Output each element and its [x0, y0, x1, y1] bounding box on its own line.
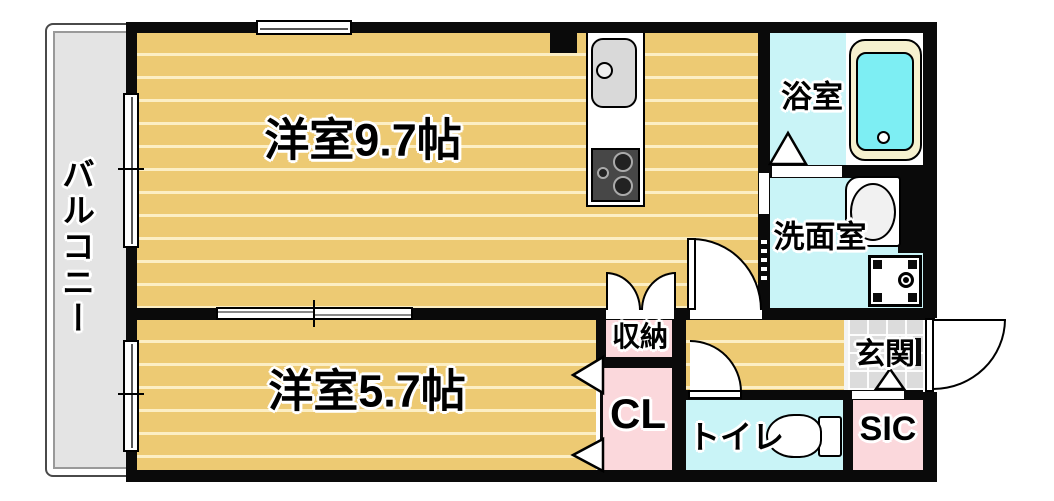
room-door-opening — [690, 309, 762, 319]
floor-plan: バルコニー 洋室9.7帖 洋室5.7帖 浴室 洗面室 収納 CL トイレ 玄関 … — [0, 0, 1054, 501]
bathroom-door-opening — [772, 166, 842, 177]
balcony-window-upper — [123, 93, 139, 248]
stove-burner-large-2 — [613, 176, 633, 196]
closet-front-line — [600, 366, 603, 470]
washroom-label: 洗面室 — [774, 222, 867, 253]
western-room-large-area — [137, 33, 758, 308]
toilet-door-leaf — [688, 390, 742, 399]
sink-faucet-icon — [596, 62, 613, 79]
wall-toilet-sic — [843, 398, 853, 470]
wall-bottom — [126, 470, 937, 482]
entrance-door-arc — [933, 319, 1006, 390]
shoe-closet-opening — [852, 391, 904, 399]
pipe-space — [898, 168, 923, 253]
wall-top — [126, 22, 937, 33]
kitchen-pillar — [550, 33, 577, 53]
closet-label: CL — [610, 393, 666, 435]
western-room-small-label: 洋室5.7帖 — [268, 369, 466, 414]
bathroom-label: 浴室 — [781, 82, 843, 113]
entrance-label: 玄関 — [855, 340, 915, 370]
washing-machine-drain-dot — [903, 277, 909, 283]
top-window — [256, 20, 352, 35]
shoe-closet-label: SIC — [860, 412, 917, 446]
washroom-folding-door — [761, 240, 767, 280]
balcony-window-lower — [123, 340, 139, 452]
storage-door-opening — [606, 309, 674, 319]
stove-burner-small — [597, 167, 609, 179]
wall-storage-right — [672, 318, 686, 470]
entrance-door-jamb — [915, 338, 921, 366]
storage-label: 収納 — [612, 323, 668, 351]
wall-right-lower — [923, 392, 937, 482]
balcony-label: バルコニー — [60, 157, 93, 337]
stove-burner-large-1 — [613, 152, 633, 172]
entrance-step — [844, 320, 848, 390]
room-door-leaf — [687, 238, 696, 310]
western-room-large-label: 洋室9.7帖 — [264, 118, 462, 163]
toilet-label: トイレ — [688, 421, 784, 453]
wall-storage-left — [596, 318, 606, 362]
washroom-door-opening — [759, 173, 769, 214]
bathtub-drain-icon — [877, 131, 890, 144]
room-sliding-door — [216, 307, 413, 320]
wall-right-upper — [923, 22, 937, 318]
entrance-door-leaf — [925, 318, 934, 392]
